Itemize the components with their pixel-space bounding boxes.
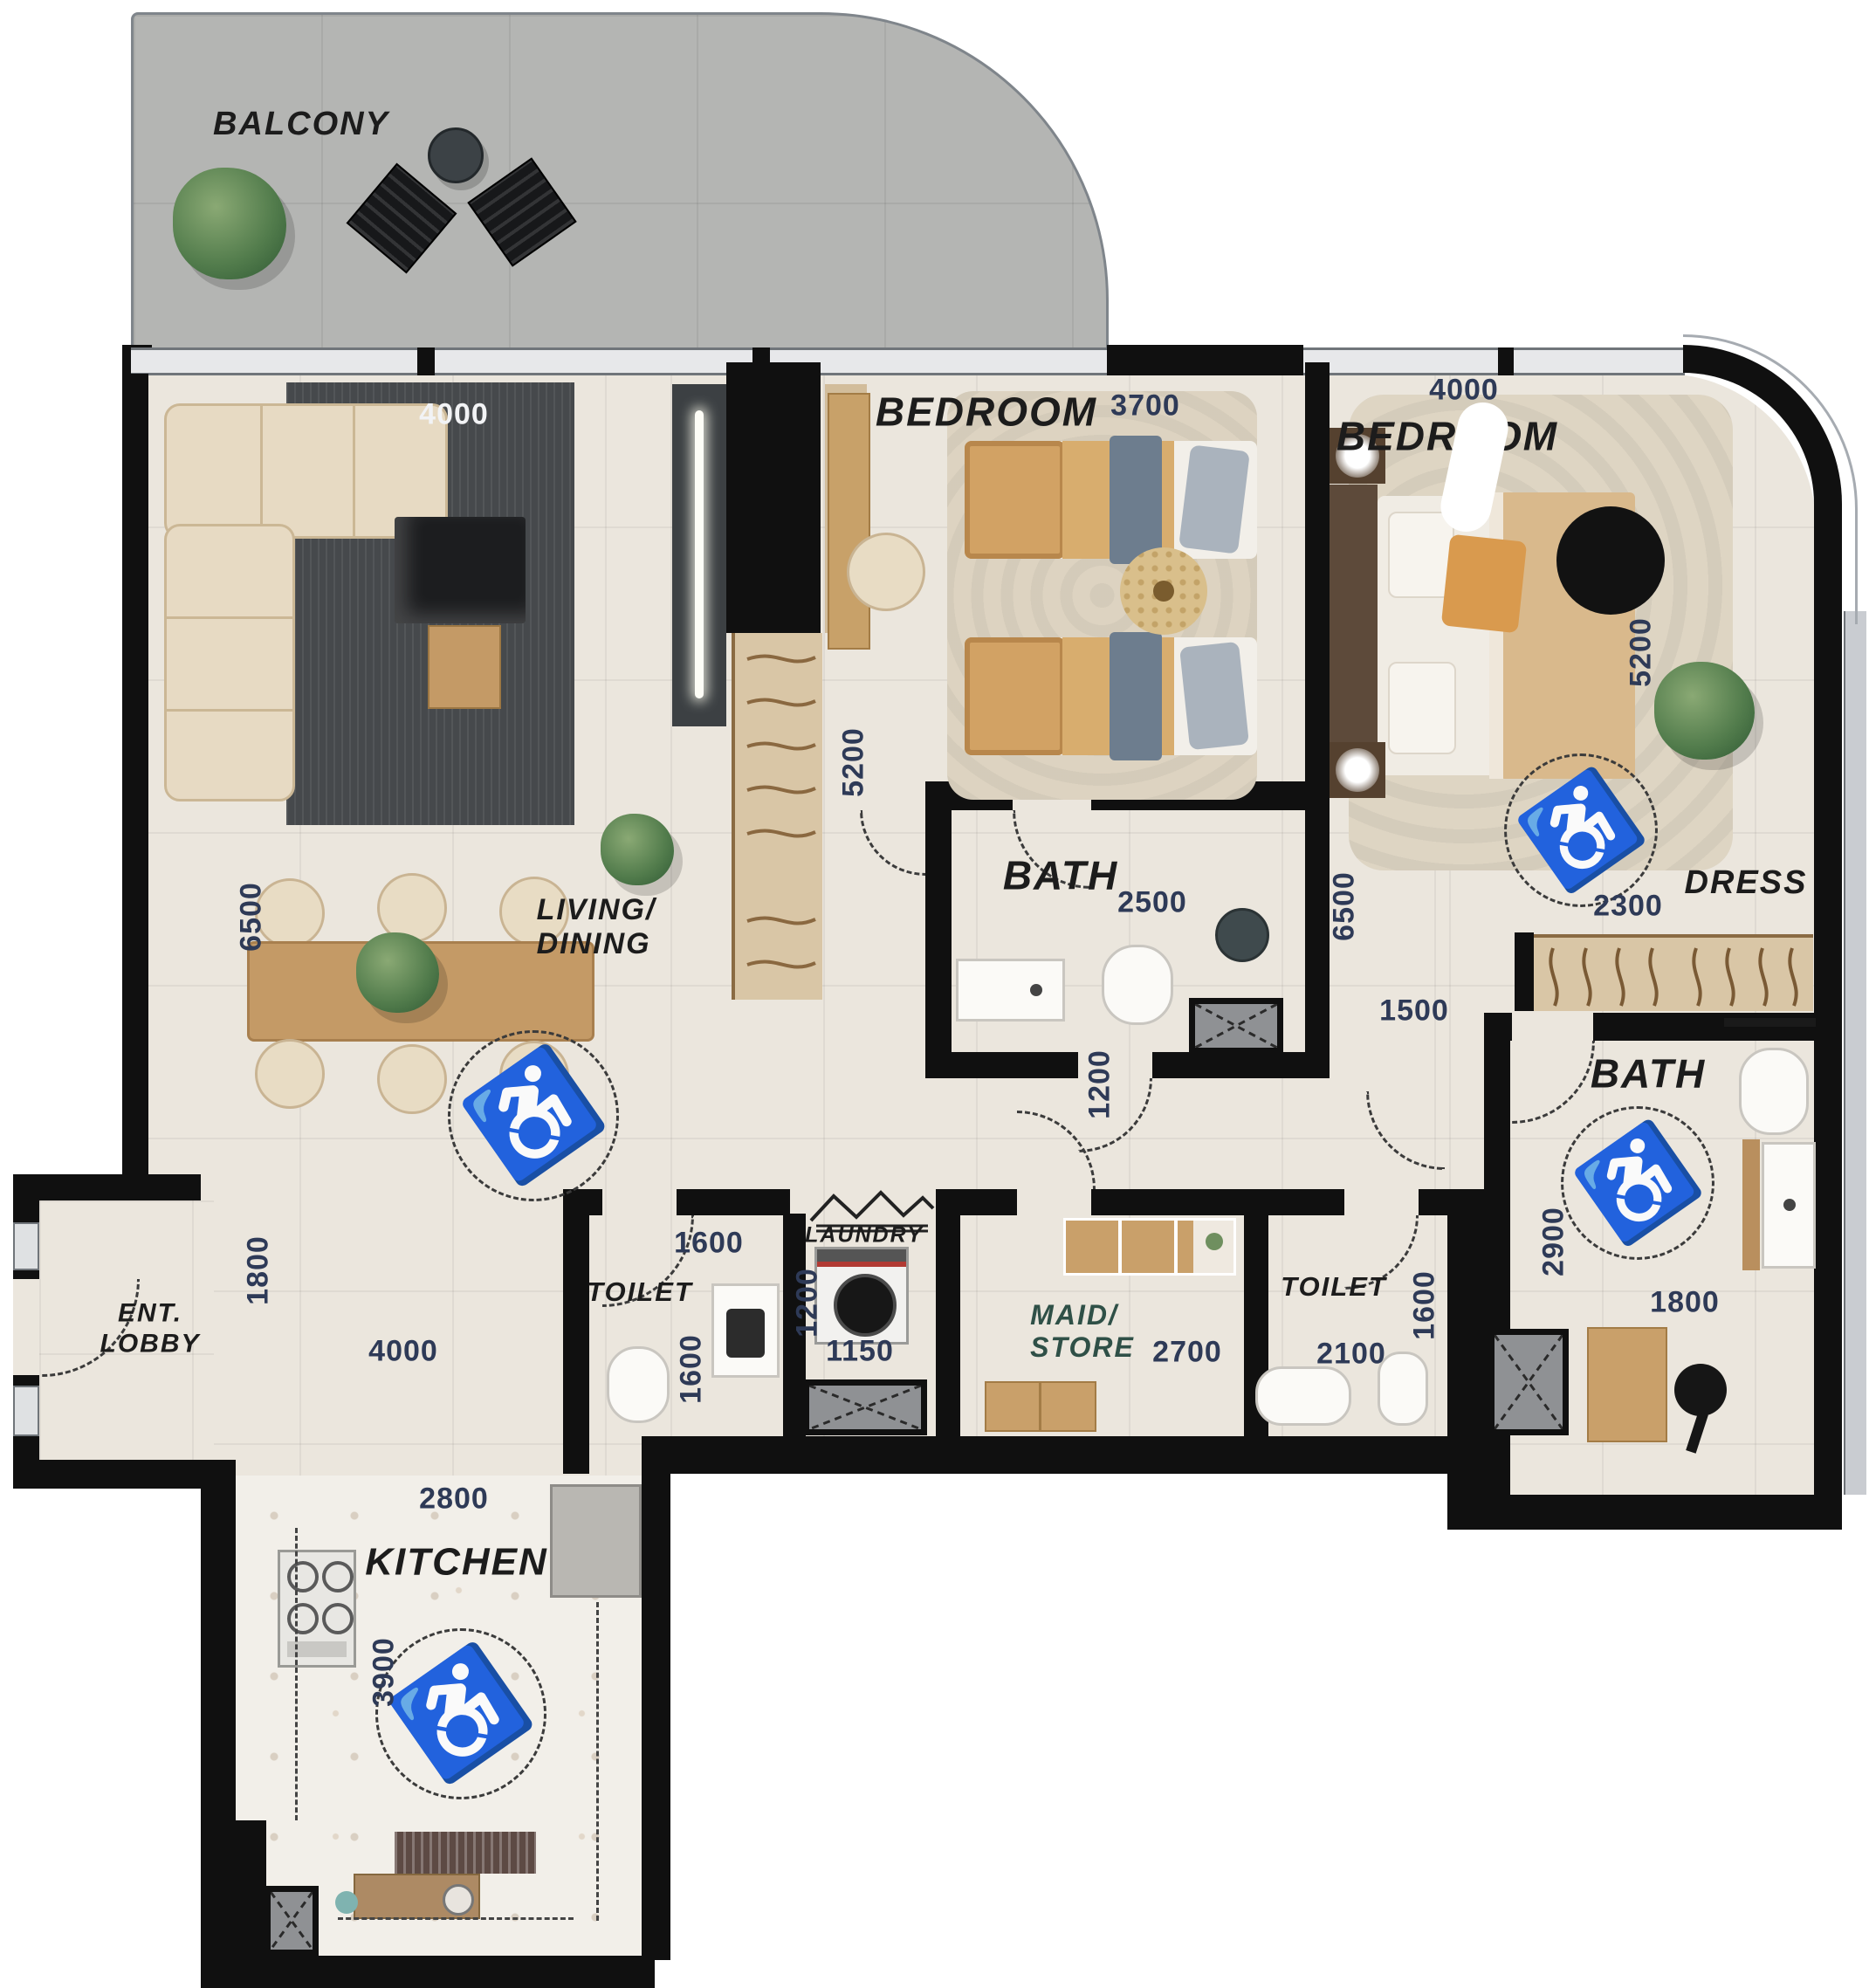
wheelchair-icon: ♿ [457,1042,609,1190]
dim-toilet1-width: 1600 [674,1227,744,1261]
balcony-label: BALCONY [213,106,389,144]
wall-top-mid [1107,345,1303,375]
balcony-floor [131,12,1109,370]
bath1-toilet [1102,945,1173,1025]
toilet2-tub [1255,1366,1351,1426]
stove-icon [278,1550,356,1668]
living-dining-label: LIVING/ DINING [537,893,656,961]
bath1-wall-bottom [1152,1052,1330,1078]
dim-corridor-mid: 1200 [1083,1049,1117,1119]
dim-living-height: 6500 [235,882,269,952]
kitchen-wall-bottom [201,1956,655,1988]
toilet1-wall-left [563,1189,589,1474]
dim-wardrobe-height: 5200 [837,727,871,797]
toilet1-wc [607,1346,670,1423]
balcony-table-icon [428,127,484,183]
towel-rack-icon [1724,1018,1816,1027]
dim-bath1-right-height: 6500 [1328,871,1362,941]
bed-single [965,637,1257,755]
window-post [1498,347,1514,375]
shaft-hatch [1488,1329,1569,1435]
dress-rail-stub [1515,932,1534,1011]
dim-lobby-height: 1800 [242,1235,276,1305]
shaft-hatch [265,1886,319,1956]
wall-connector [1447,1436,1484,1530]
pouf-icon [1120,547,1207,635]
dim-bedroom2-right: 5200 [1625,617,1659,687]
corridor-plant-icon [601,814,674,885]
dim-corridor-right: 1500 [1379,994,1449,1028]
lobby-window [13,1222,39,1270]
bed-pillow [1179,642,1249,750]
wheelchair-icon: ♿ [384,1641,537,1788]
dim-living-rug: 4000 [419,398,489,432]
dim-laundry-height: 1200 [791,1268,825,1338]
bath2-vanity-wood [1742,1139,1760,1270]
maid-toilet2-divider [1244,1214,1268,1474]
dim-bath2-height: 2900 [1537,1207,1571,1276]
wall-bottom-right [1447,1495,1842,1530]
curved-corner-wall [1683,345,1842,624]
wheelchair-turning-circle: ♿ [1561,1106,1714,1260]
bath1-sink [956,959,1065,1022]
rooms-row-top-wall [677,1189,790,1215]
floor-plan: ♿ ♿ ♿ ♿ BALCONY LIVING/ DINING BEDROOM B… [0,0,1869,1988]
dim-bedroom2-top: 4000 [1429,374,1499,408]
coffee-table [395,517,526,623]
maid-closet [1063,1218,1236,1276]
bed-pillow [1178,444,1250,554]
bath1-wall-right [1305,781,1330,1078]
lobby-window [13,1386,39,1436]
lobby-door-gap [13,1279,39,1375]
wheelchair-icon: ♿ [1570,1118,1706,1249]
ent-lobby-label: ENT. LOBBY [100,1299,201,1359]
bed-pillow [1388,662,1456,754]
dim-laundry-width: 1150 [826,1335,894,1369]
balcony-plant-icon [173,168,286,279]
bedrooms-divider-wall [1305,362,1330,781]
toilet1-counter [711,1283,780,1378]
bath2-wall-top [1484,1013,1512,1041]
bed-single [965,441,1257,559]
lobby-wall-top [13,1174,201,1200]
dim-toilet2-height: 1600 [1408,1270,1442,1340]
dress-rail [1534,934,1813,1011]
bath1-wall-bottom [925,1052,1078,1078]
corridor-cabinet [726,362,821,633]
kitchen-tall-cabinet [550,1484,642,1598]
bath1-wall-left [925,810,952,1078]
bed-headboard [965,441,1065,559]
washing-machine-icon [814,1247,909,1345]
laundry-label: LAUNDRY [805,1223,924,1249]
bedroom2-label: BEDROOM [1336,414,1558,460]
bed-throw [1110,436,1162,564]
bedroom1-desk [828,393,870,650]
toilet1-label: TOILET [587,1276,693,1308]
dim-toilet2-width: 2100 [1316,1338,1386,1372]
hangers-icon [1534,938,1813,1015]
wall-right [1814,601,1842,1498]
dim-kitchen-top: 2800 [419,1482,489,1517]
bed-sheet-fold [1489,492,1503,779]
kitchen-counter-dashline [338,1917,574,1920]
bed-pillow-orange [1441,534,1527,634]
wheelchair-turning-circle: ♿ [1504,753,1658,907]
hangers-icon [735,633,826,1000]
sofa-side [164,524,295,801]
dim-kitchen-height: 3900 [368,1637,402,1707]
dim-bedroom2-bottom: 2300 [1593,890,1663,924]
toilet2-bath2-divider [1447,1189,1484,1442]
wall-lamp-icon [1330,742,1385,798]
kitchen-counter-dashline [295,1528,298,1820]
kitchen-counter-dashline [596,1602,599,1921]
maid-bench [985,1381,1096,1432]
dim-bath2-width: 1800 [1650,1286,1720,1320]
dim-maid-width: 2700 [1152,1336,1222,1370]
tv-screen [695,410,704,698]
kitchen-wall-right [642,1474,670,1960]
shower-head-icon [1674,1364,1727,1416]
rooms-row-top-wall [1091,1189,1344,1215]
kitchen-label: KITCHEN [365,1541,548,1586]
desk-chair [847,533,925,611]
dim-bedroom1-width: 3700 [1110,389,1180,423]
wall-left [122,374,148,1200]
toilet2-label: TOILET [1281,1271,1387,1303]
bath1-label: BATH [1003,853,1118,899]
bath2-sink [1762,1142,1816,1269]
wall-bottom-mid [642,1436,1449,1474]
shaft-hatch [803,1379,927,1435]
dining-chair [377,1044,447,1114]
dim-bath1-width: 2500 [1117,886,1187,920]
wheelchair-icon: ♿ [1513,765,1649,896]
dining-plant-icon [356,932,439,1013]
round-side-table-icon [1556,506,1665,615]
bed-throw [1110,632,1162,760]
corridor-wardrobe [732,633,822,1000]
kitchen-backsplash [395,1832,536,1874]
bath2-toilet [1739,1048,1809,1135]
bed-double-headboard [1330,485,1378,786]
bed-headboard [965,637,1065,755]
bath1-mirror-icon [1215,908,1269,962]
dim-toilet1-height: 1600 [675,1334,709,1404]
dress-label: DRESS [1685,864,1808,903]
lobby-wall-bottom [13,1460,214,1489]
kitchen-sink-counter [354,1874,480,1919]
kitchen-corner-block [201,1820,266,1960]
window-band [1303,347,1685,375]
bath2-label: BATH [1591,1051,1706,1097]
bath2-wall-top [1593,1013,1814,1041]
bedroom1-label: BEDROOM [876,389,1097,436]
window-post [417,347,435,375]
exterior-strip [1844,611,1866,1495]
bath2-bench [1587,1327,1667,1442]
kitchen-glass-icon [335,1891,358,1914]
bedroom2-plant-icon [1654,662,1755,760]
side-table-wood [428,625,501,709]
laundry-maid-divider [936,1189,960,1474]
maid-store-label: MAID/ STORE [1030,1299,1135,1364]
wheelchair-turning-circle: ♿ [448,1030,619,1201]
shaft-hatch [1189,998,1283,1054]
window-band [131,347,1107,375]
dim-lobby-width: 4000 [368,1335,438,1369]
dining-chair [255,1039,325,1109]
